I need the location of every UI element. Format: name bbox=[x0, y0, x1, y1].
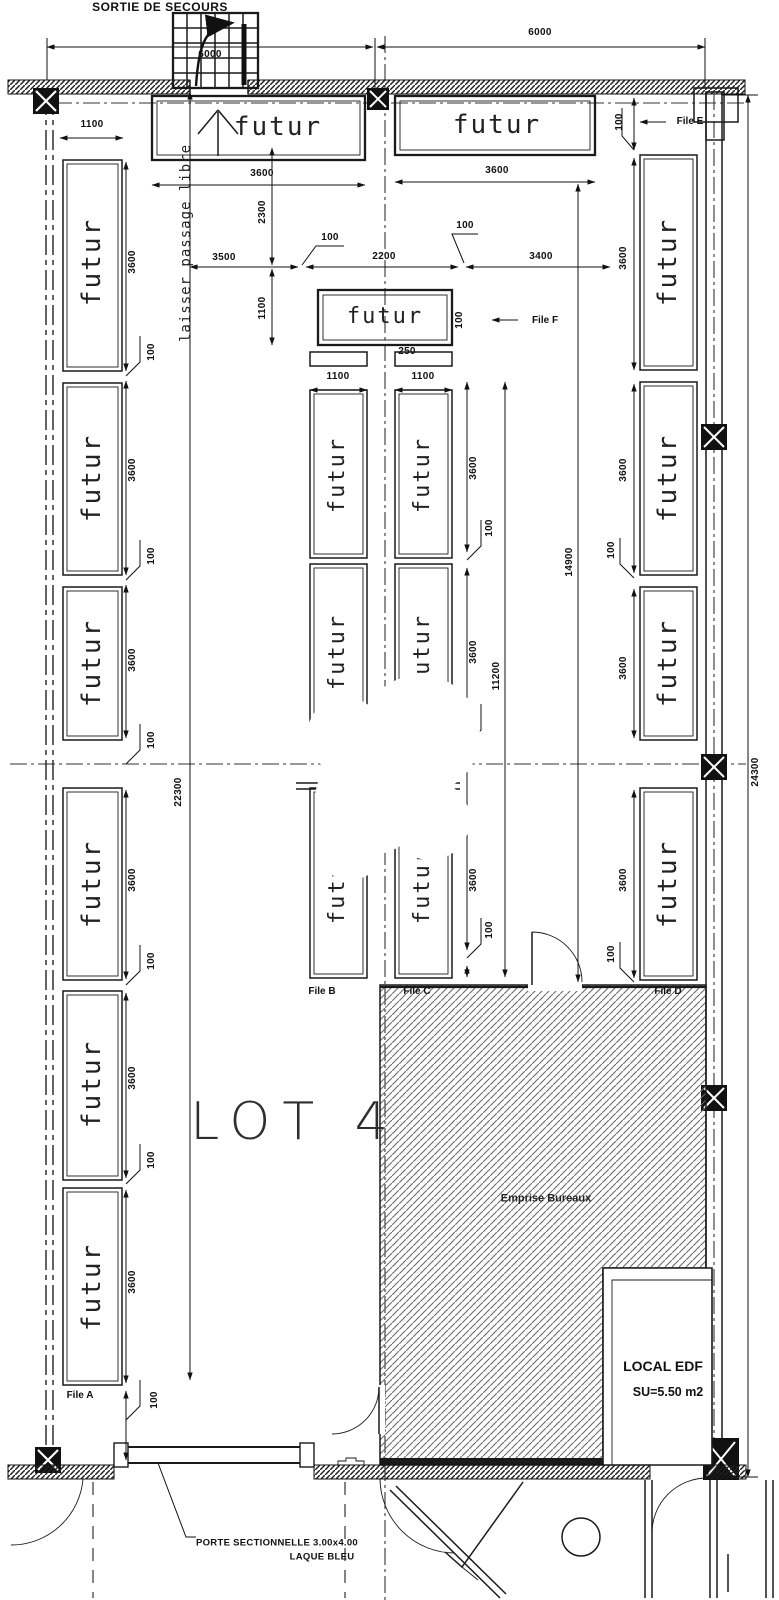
door-note-line2: LAQUE BLEU bbox=[290, 1552, 355, 1562]
dim-3600: 3600 bbox=[128, 1066, 138, 1089]
rack-label: futur bbox=[79, 619, 105, 707]
dim-100: 100 bbox=[147, 547, 157, 565]
lower-rooms bbox=[11, 1478, 773, 1598]
rack-label: futur bbox=[327, 614, 349, 690]
door-swing-bottom-left bbox=[11, 1479, 83, 1545]
dim-100: 100 bbox=[607, 945, 617, 963]
dim-2200: 2200 bbox=[372, 252, 395, 262]
file-e-label: File E bbox=[677, 117, 704, 127]
dim-100: 100 bbox=[147, 952, 157, 970]
dim-100: 100 bbox=[485, 519, 495, 537]
dim-3600: 3600 bbox=[250, 169, 273, 179]
dim-3600: 3600 bbox=[619, 656, 629, 679]
rack-label: futur bbox=[79, 1040, 105, 1128]
dim-3600: 3600 bbox=[469, 868, 479, 891]
dim-1100: 1100 bbox=[258, 297, 268, 320]
rack-label: futur bbox=[347, 306, 423, 328]
dim-100: 100 bbox=[607, 541, 617, 559]
dim-100: 100 bbox=[456, 221, 474, 231]
dim-22300: 22300 bbox=[174, 777, 184, 806]
dim-1100: 1100 bbox=[412, 372, 435, 382]
up-arrow-icon bbox=[198, 110, 238, 156]
floor-plan: SORTIE DE SECOURS 6000 6000 1100 futur f… bbox=[0, 0, 779, 1600]
rack-label: futur bbox=[234, 114, 322, 140]
file-f-label: File F bbox=[532, 316, 558, 326]
door-swing-left bbox=[332, 1387, 379, 1434]
rack-label: futur bbox=[655, 434, 681, 522]
left-rack-column bbox=[63, 160, 122, 1385]
dim-100: 100 bbox=[455, 311, 465, 329]
rack-label: futur bbox=[79, 218, 105, 306]
dim-3600: 3600 bbox=[128, 868, 138, 891]
dim-3600: 3600 bbox=[469, 456, 479, 479]
fixture-circle bbox=[562, 1518, 600, 1556]
dim-100: 100 bbox=[147, 731, 157, 749]
dim-250: 250 bbox=[398, 347, 416, 357]
file-b-label: File B bbox=[308, 987, 335, 997]
rack-label: futur bbox=[327, 437, 349, 513]
file-d-label: File D bbox=[654, 987, 681, 997]
rack-label: futur bbox=[79, 840, 105, 928]
door-note-line1: PORTE SECTIONNELLE 3.00x4.00 bbox=[196, 1538, 358, 1548]
dim-100: 100 bbox=[150, 1391, 160, 1409]
dim-3600: 3600 bbox=[619, 868, 629, 891]
rack-label: futur bbox=[655, 840, 681, 928]
dim-3600: 3600 bbox=[128, 458, 138, 481]
dim-100: 100 bbox=[147, 343, 157, 361]
dim-100: 100 bbox=[147, 1151, 157, 1169]
dim-100: 100 bbox=[485, 921, 495, 939]
dim-3500: 3500 bbox=[212, 253, 235, 263]
dim-1100-topleft: 1100 bbox=[81, 120, 104, 130]
rack-label: futur bbox=[655, 218, 681, 306]
rack-label: futur bbox=[79, 1243, 105, 1331]
dim-3600: 3600 bbox=[619, 458, 629, 481]
rack-label: futur bbox=[655, 619, 681, 707]
rack-label: futur bbox=[453, 112, 541, 138]
exit-sign-label: SORTIE DE SECOURS bbox=[92, 1, 228, 13]
door-swing-bottom-right bbox=[652, 1478, 707, 1533]
door-swing-top bbox=[532, 932, 582, 982]
dim-3600: 3600 bbox=[128, 648, 138, 671]
dim-2300: 2300 bbox=[258, 200, 268, 223]
sectional-door bbox=[114, 1443, 314, 1537]
local-edf-area: SU=5.50 m2 bbox=[633, 1386, 704, 1399]
passage-note: laisser passage libre bbox=[179, 144, 193, 342]
dim-3600: 3600 bbox=[469, 640, 479, 663]
dim-100: 100 bbox=[321, 233, 339, 243]
dim-3600: 3600 bbox=[619, 246, 629, 269]
dim-100: 100 bbox=[615, 113, 625, 131]
rack-label: futur bbox=[79, 434, 105, 522]
left-wall bbox=[46, 95, 53, 1465]
file-c-label: File C bbox=[403, 987, 430, 997]
local-edf-name: LOCAL EDF bbox=[623, 1359, 703, 1373]
dim-3600: 3600 bbox=[128, 1270, 138, 1293]
dim-11200: 11200 bbox=[492, 662, 502, 691]
dim-6000-left: 6000 bbox=[198, 50, 221, 60]
dim-14900: 14900 bbox=[565, 547, 575, 576]
middle-rack-column-c bbox=[296, 352, 460, 978]
dim-1100: 1100 bbox=[327, 372, 350, 382]
emprise-label: Emprise Bureaux bbox=[501, 1194, 591, 1205]
dim-3400: 3400 bbox=[529, 252, 552, 262]
file-a-label: File A bbox=[67, 1391, 94, 1401]
dim-6000-right: 6000 bbox=[528, 28, 551, 38]
rack-label: futur bbox=[412, 437, 434, 513]
dim-3600: 3600 bbox=[485, 166, 508, 176]
dim-3600: 3600 bbox=[128, 250, 138, 273]
dim-24300: 24300 bbox=[751, 757, 761, 786]
lot-label: LOT 4 bbox=[190, 1096, 399, 1148]
